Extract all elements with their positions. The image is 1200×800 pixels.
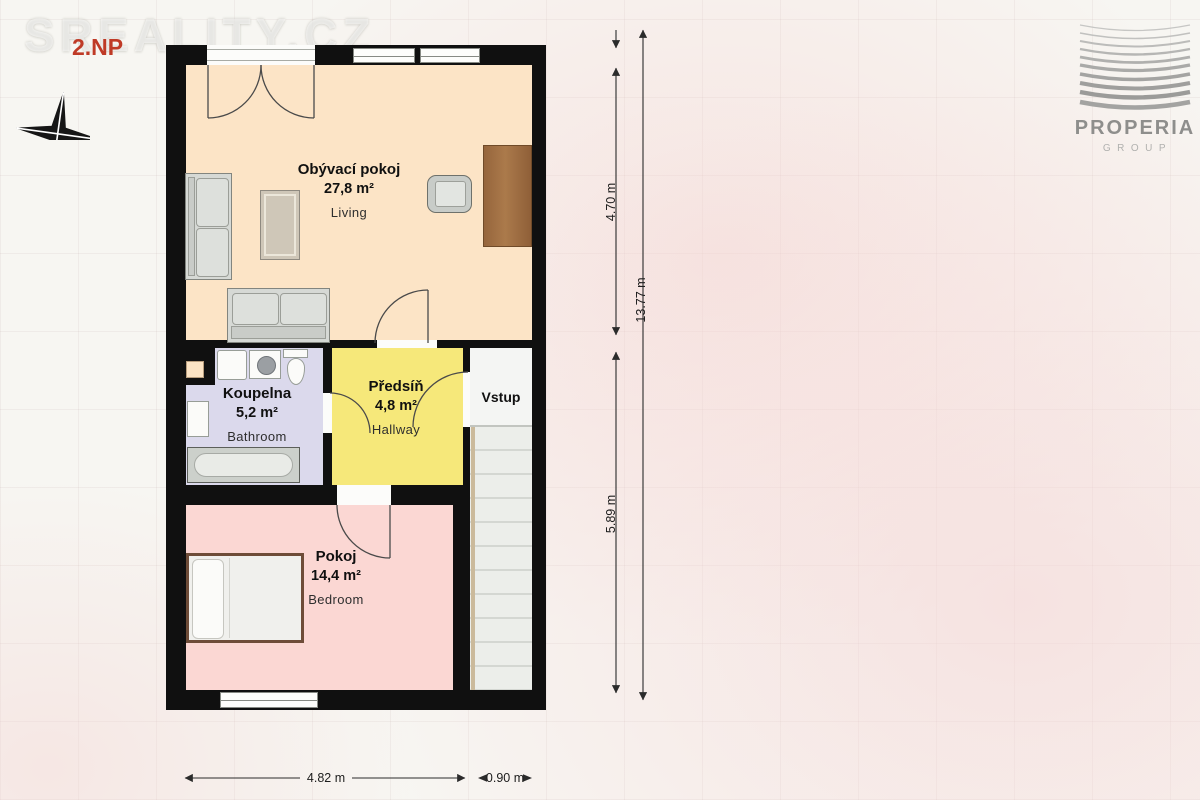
washing-machine — [217, 350, 247, 380]
entry-landing — [470, 348, 532, 427]
room-subtitle: Hallway — [368, 422, 423, 437]
desk — [483, 145, 532, 247]
room-subtitle: Bedroom — [308, 592, 364, 607]
dimension-right-top: 4.70 m — [604, 183, 618, 221]
dimension-right-bottom: 5.89 m — [604, 495, 618, 533]
dimension-bottom-width: 4.82 m — [307, 771, 345, 785]
dimension-right-total: 13.77 m — [634, 277, 648, 322]
heater — [186, 361, 204, 378]
bathtub — [187, 447, 300, 483]
label-entry: Vstup — [482, 389, 521, 407]
window-bedroom — [220, 692, 318, 708]
room-area: 5,2 m² — [223, 404, 291, 422]
room-name: Koupelna — [223, 385, 291, 404]
dimension-bottom-entry: 0.90 m — [486, 771, 524, 785]
door-opening-living-hallway — [377, 340, 437, 348]
room-name: Vstup — [482, 389, 521, 407]
toilet — [283, 349, 308, 358]
sink-counter — [249, 350, 281, 379]
label-bathroom: Koupelna 5,2 m² Bathroom — [223, 385, 291, 444]
window-living-2 — [420, 48, 480, 63]
room-name: Předsíň — [368, 378, 423, 397]
sofa-left — [185, 173, 232, 280]
floor-plan: Obývací pokoj 27,8 m² Living Koupelna 5,… — [166, 45, 546, 710]
screenshot-root: SREALITY.CZ 2.NP N — [0, 0, 1200, 800]
properia-logo-icon — [1072, 22, 1198, 110]
door-opening-bedroom — [337, 485, 391, 505]
room-area: 27,8 m² — [298, 180, 401, 198]
bed — [186, 553, 304, 643]
floor-level-label: 2.NP — [72, 34, 123, 61]
bathroom-cabinet — [187, 401, 209, 437]
logo-company-name: PROPERIA — [1072, 117, 1198, 140]
door-opening-bathroom — [323, 393, 332, 433]
properia-logo: PROPERIA GROUP — [1072, 22, 1198, 154]
coffee-table — [260, 190, 300, 260]
label-living: Obývací pokoj 27,8 m² Living — [298, 161, 401, 220]
room-name: Pokoj — [308, 548, 364, 567]
logo-division-name: GROUP — [1072, 143, 1198, 154]
staircase — [470, 427, 532, 690]
room-area: 4,8 m² — [368, 397, 423, 415]
room-subtitle: Living — [298, 205, 401, 220]
compass-rose-icon: N — [6, 76, 90, 140]
label-bedroom: Pokoj 14,4 m² Bedroom — [308, 548, 364, 607]
room-area: 14,4 m² — [308, 567, 364, 585]
armchair — [427, 175, 472, 213]
room-name: Obývací pokoj — [298, 161, 401, 180]
room-subtitle: Bathroom — [223, 429, 291, 444]
window-living-1 — [353, 48, 415, 63]
sofa-bottom — [227, 288, 330, 343]
label-hallway: Předsíň 4,8 m² Hallway — [368, 378, 423, 437]
stair-stringer — [471, 427, 475, 690]
balcony-door-opening — [207, 45, 315, 65]
door-opening-entry — [463, 372, 470, 427]
